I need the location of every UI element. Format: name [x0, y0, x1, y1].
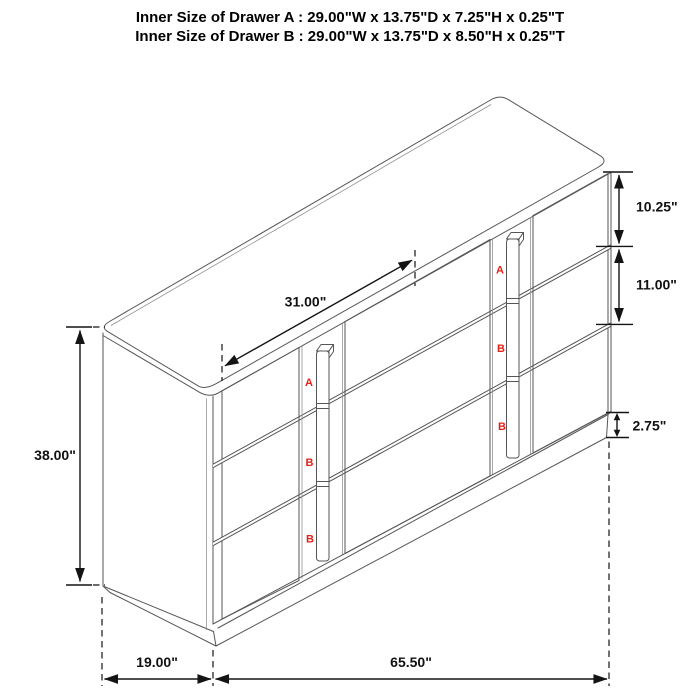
- diagram-svg: A B B A B B 38.00": [0, 0, 700, 700]
- drawer-b-label: B: [306, 534, 314, 546]
- drawer-b-label: B: [497, 343, 505, 355]
- overall-height-label: 38.00": [34, 447, 76, 463]
- cabinet-drawing: A B B A B B: [102, 97, 611, 646]
- drawer-a-label: A: [496, 265, 504, 277]
- drawer-b-height-label: 11.00": [636, 277, 677, 293]
- drawer-a-label: A: [305, 377, 313, 389]
- arrowhead-icon: [614, 430, 621, 437]
- arrowhead-icon: [614, 413, 621, 420]
- drawer-b-label: B: [498, 421, 506, 433]
- overall-width-label: 65.50": [390, 654, 432, 670]
- top-span-label: 31.00": [285, 294, 327, 310]
- cabinet-silhouette: [102, 97, 611, 646]
- dimension-base-height: 2.75": [606, 413, 666, 438]
- dimension-overall-height: 38.00": [34, 327, 105, 585]
- base-height-label: 2.75": [633, 418, 667, 434]
- drawer-a-height-label: 10.25": [636, 199, 678, 215]
- handle-shaft: [507, 239, 520, 458]
- drawer-b-label: B: [306, 457, 314, 469]
- furniture-dimension-diagram: Inner Size of Drawer A : 29.00"W x 13.75…: [0, 0, 700, 700]
- overall-depth-label: 19.00": [136, 654, 178, 670]
- handle-shaft: [317, 351, 330, 561]
